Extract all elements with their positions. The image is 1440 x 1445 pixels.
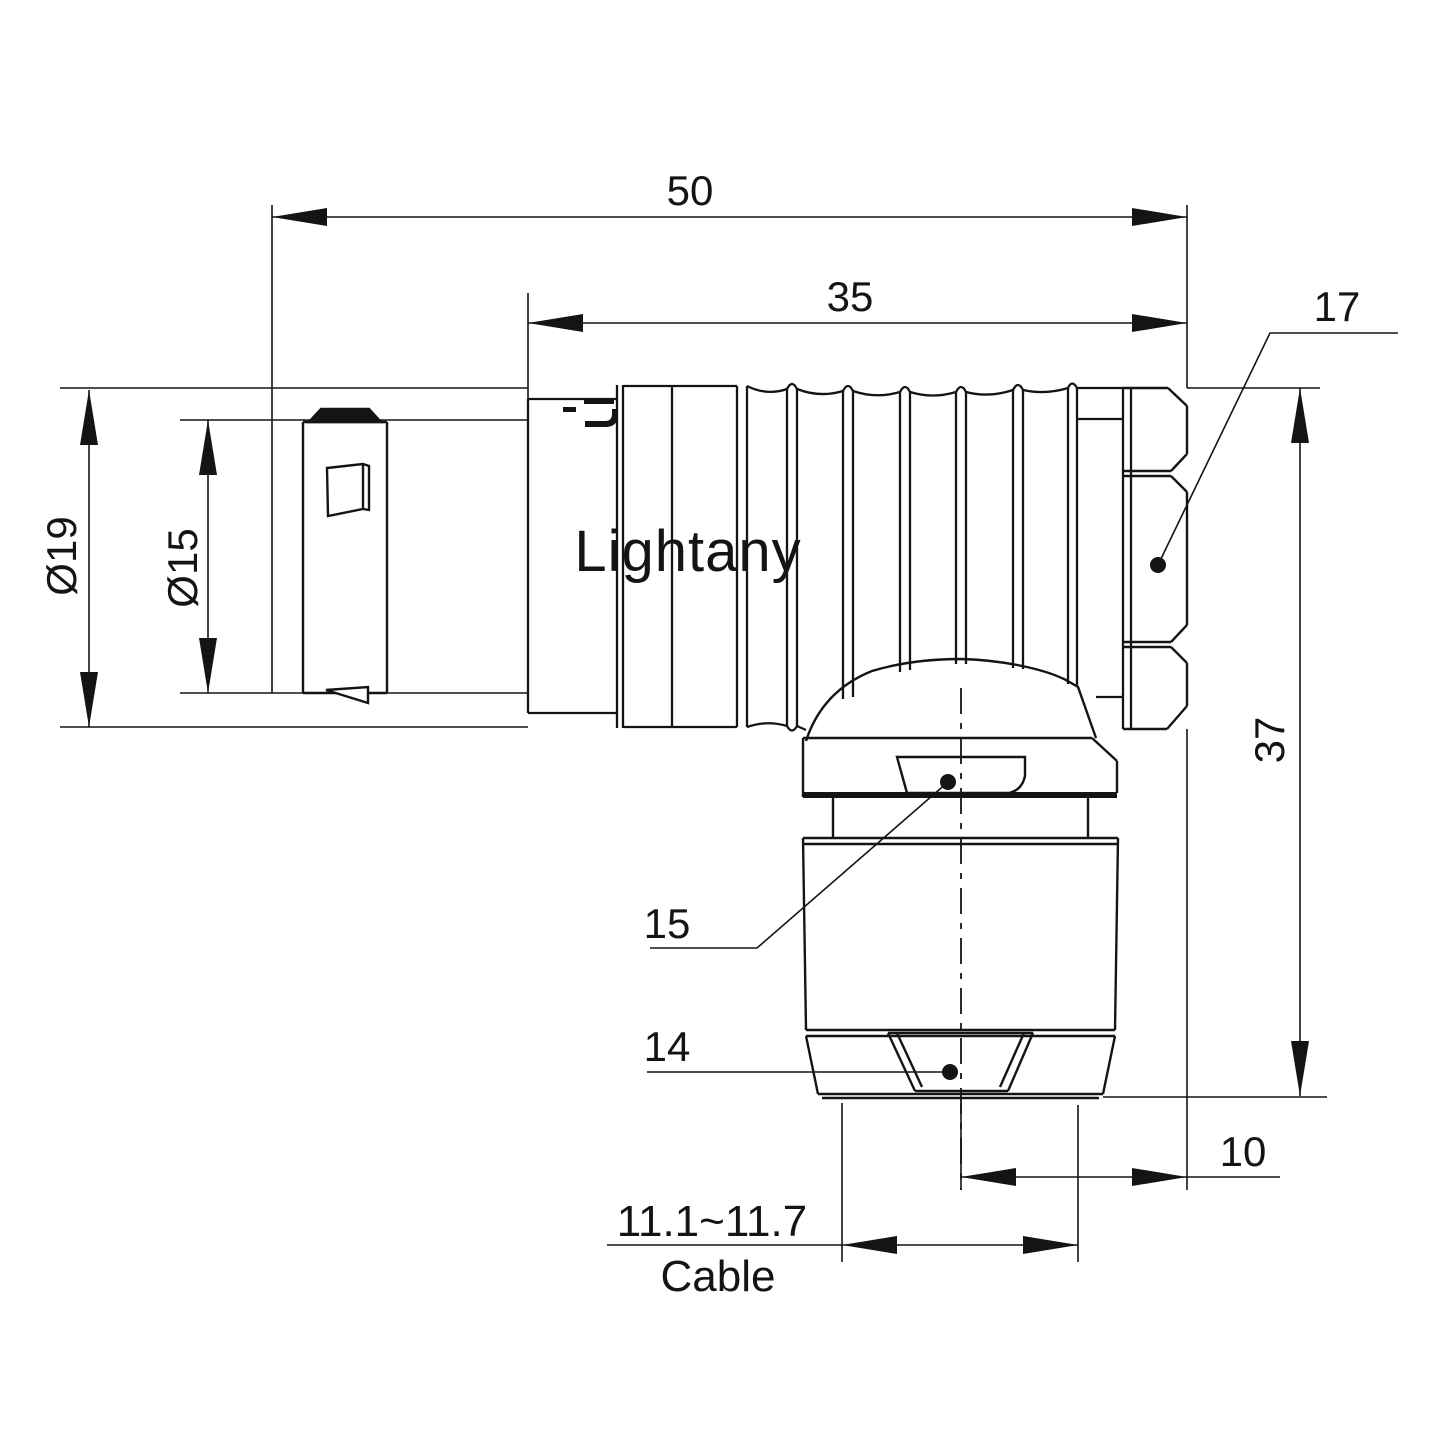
dim-text-dia19: Ø19 — [38, 516, 85, 595]
barrel-cap — [309, 409, 381, 422]
label-text-15: 15 — [644, 900, 691, 947]
leader-17 — [1158, 333, 1398, 565]
leader-dot-15 — [940, 774, 956, 790]
dim-overall-length — [272, 208, 1187, 226]
rear-barrel — [303, 409, 387, 703]
barrel-latch-wedge — [326, 687, 368, 703]
leader-15 — [650, 782, 948, 948]
dim-text-10: 10 — [1220, 1128, 1267, 1175]
leader-dot-14 — [942, 1064, 958, 1080]
elbow-dome — [806, 659, 1096, 741]
watermark-text: Lightany — [574, 519, 801, 584]
label-text-17: 17 — [1314, 283, 1361, 330]
collar-band — [803, 738, 1117, 797]
dim-text-cable-word: Cable — [661, 1252, 776, 1301]
technical-drawing-canvas: Lightany — [0, 0, 1440, 1440]
dim-text-dia15: Ø15 — [159, 528, 206, 607]
leader-dot-17 — [1150, 557, 1166, 573]
shell-top-profile — [747, 386, 1123, 396]
dim-text-35: 35 — [827, 273, 874, 320]
dim-text-50: 50 — [667, 167, 714, 214]
dim-height — [1291, 388, 1309, 1096]
extension-lines — [60, 205, 1327, 1262]
ribs — [787, 388, 1077, 726]
shell-brand-mark — [563, 398, 618, 427]
connector-drawing-svg: Lightany — [0, 0, 1440, 1440]
dim-text-cable-range: 11.1~11.7 — [617, 1197, 807, 1246]
label-text-14: 14 — [644, 1023, 691, 1070]
dim-text-37: 37 — [1246, 717, 1293, 764]
